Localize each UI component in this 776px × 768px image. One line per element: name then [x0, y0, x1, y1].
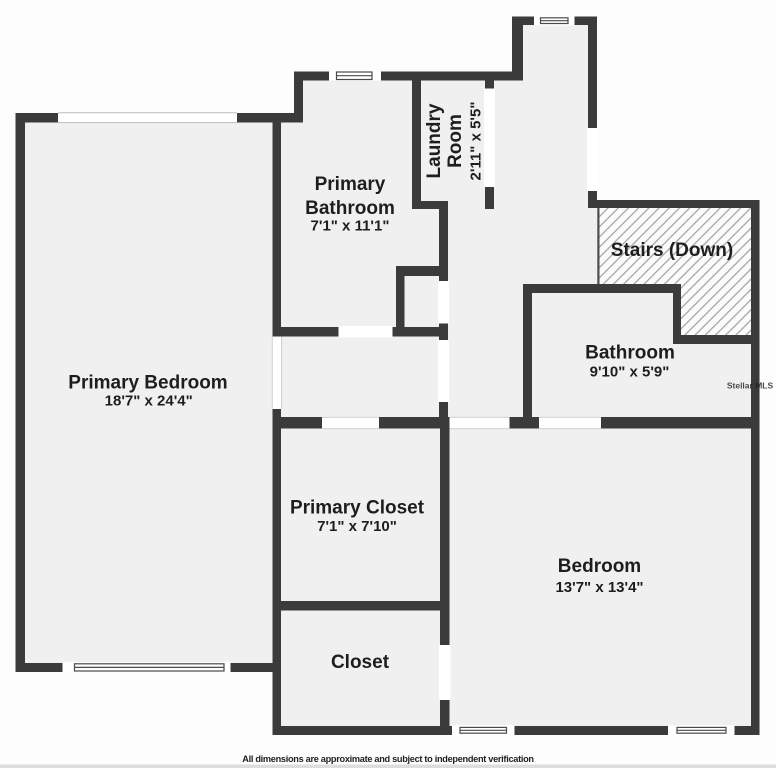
svg-text:Room: Room: [445, 114, 466, 168]
svg-text:Stellar MLS: Stellar MLS: [727, 381, 774, 391]
svg-text:Primary Closet: Primary Closet: [290, 497, 425, 518]
svg-text:Primary: Primary: [315, 174, 386, 195]
svg-text:Bathroom: Bathroom: [305, 198, 395, 219]
svg-text:9'10" x 5'9": 9'10" x 5'9": [590, 363, 670, 380]
svg-text:Closet: Closet: [331, 652, 390, 673]
svg-text:18'7" x 24'4": 18'7" x 24'4": [105, 392, 193, 409]
svg-text:7'1" x 7'10": 7'1" x 7'10": [317, 518, 397, 535]
svg-text:All dimensions are approximate: All dimensions are approximate and subje…: [242, 754, 534, 764]
svg-text:Bedroom: Bedroom: [558, 556, 641, 577]
svg-text:2'11" x 5'5": 2'11" x 5'5": [467, 102, 484, 181]
svg-text:Primary Bedroom: Primary Bedroom: [68, 372, 227, 393]
svg-text:7'1" x 11'1": 7'1" x 11'1": [311, 218, 390, 235]
svg-text:Laundry: Laundry: [424, 103, 445, 178]
svg-text:Stairs (Down): Stairs (Down): [611, 240, 733, 261]
svg-text:Bathroom: Bathroom: [585, 342, 675, 363]
svg-text:13'7" x 13'4": 13'7" x 13'4": [555, 579, 643, 596]
